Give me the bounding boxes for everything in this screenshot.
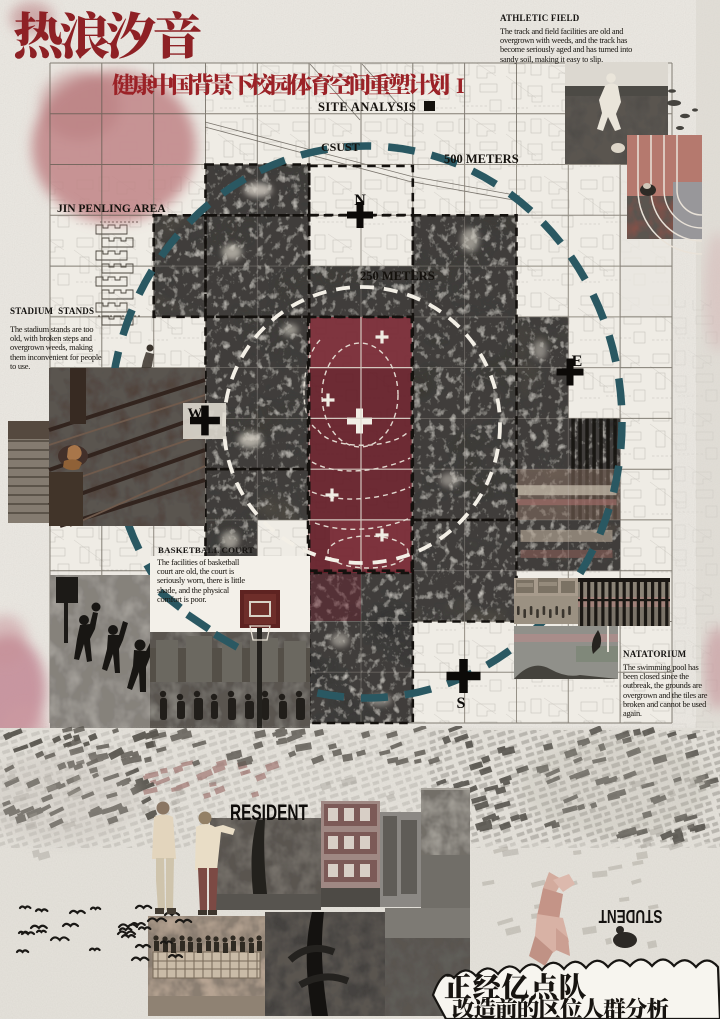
svg-text:W: W (188, 406, 203, 422)
svg-text:I: I (456, 73, 465, 98)
